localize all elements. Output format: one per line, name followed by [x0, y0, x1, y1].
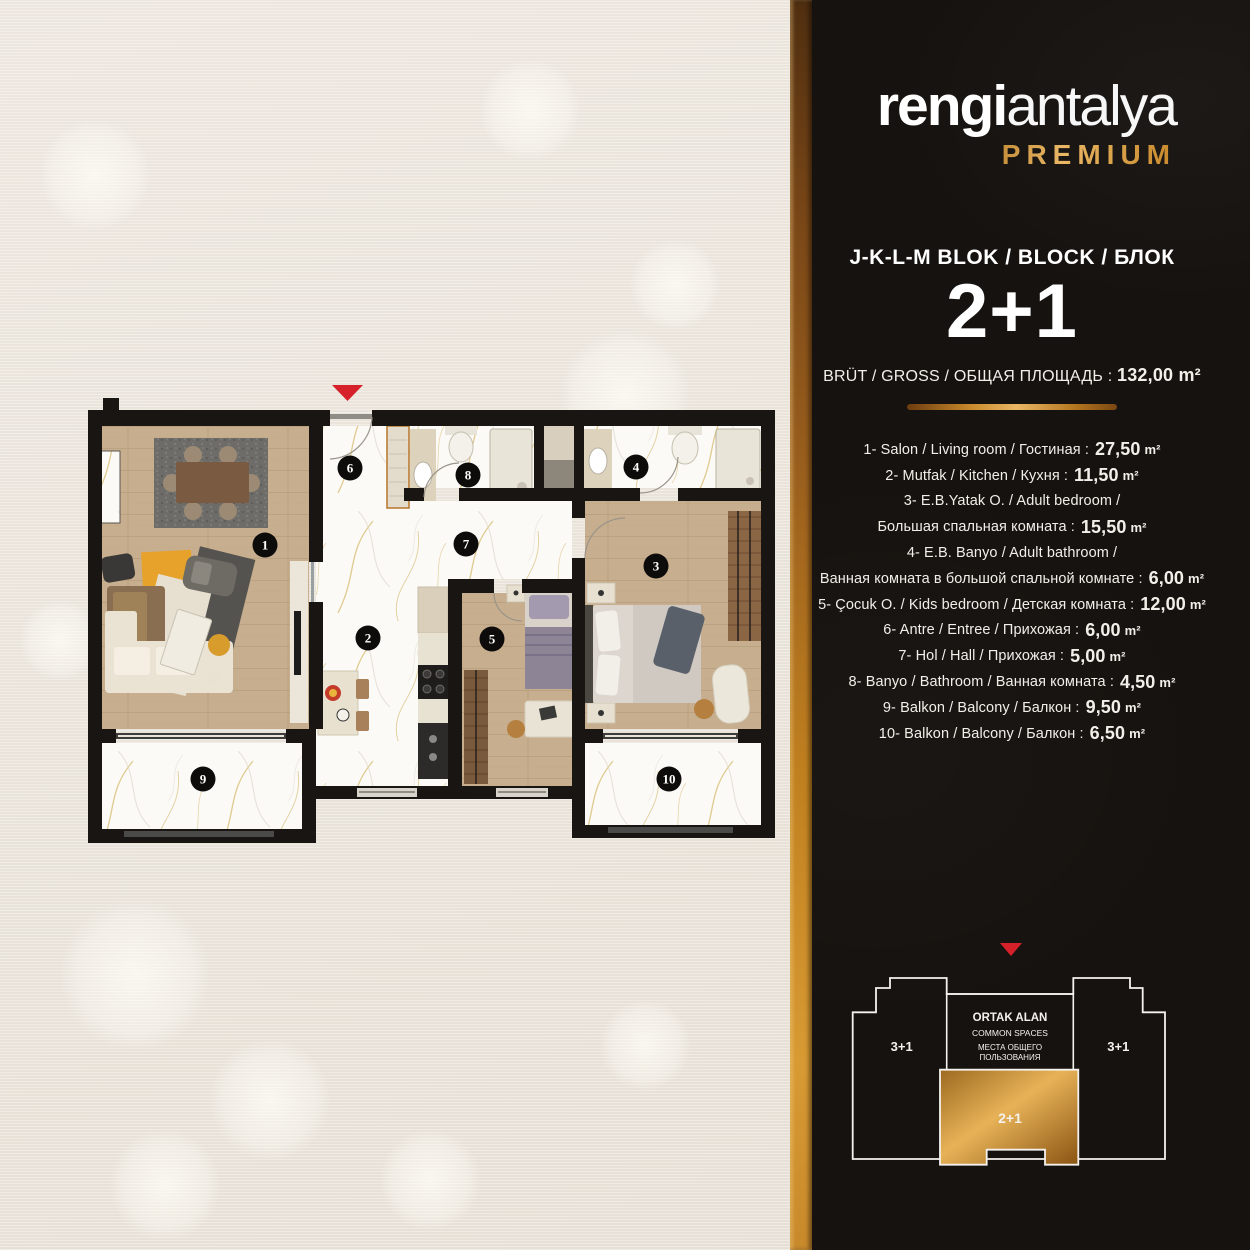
- room-list-item: Большая спальная комната :15,50m²: [812, 514, 1212, 540]
- room-area-unit: m²: [1188, 571, 1204, 586]
- room-badge-number: 6: [347, 461, 354, 476]
- sink: [414, 462, 432, 488]
- counter: [418, 699, 448, 723]
- dining-chair: [184, 502, 202, 520]
- balcony10-rail: [608, 827, 733, 833]
- wall-bath8-1: [404, 488, 424, 501]
- room-list-item: 6- Antre / Entree / Прихожая :6,00m²: [812, 618, 1212, 644]
- wall-living-bottom-1: [88, 729, 116, 743]
- wardrobe: [728, 511, 761, 641]
- room-list-item: 3- E.B.Yatak O. / Adult bedroom /: [812, 489, 1212, 515]
- common-area-label-en: COMMON SPACES: [972, 1028, 1048, 1038]
- wall-bath8-2: [459, 488, 640, 501]
- brand-wordmark: rengiantalya: [877, 78, 1176, 135]
- room-area-unit: m²: [1129, 726, 1145, 741]
- wall-bed3-bottom-1: [585, 729, 603, 743]
- small-pouf: [208, 671, 222, 685]
- room-badge-number: 1: [262, 538, 269, 553]
- block-position-diagram: 3+1 3+1 ORTAK ALAN COMMON SPACES МЕСТА О…: [850, 938, 1170, 1173]
- room-label: 6- Antre / Entree / Прихожая :: [883, 622, 1079, 638]
- side-table: [100, 552, 136, 583]
- room-label: 3- E.B.Yatak O. / Adult bedroom /: [904, 493, 1121, 509]
- pillow: [595, 654, 620, 696]
- room-badge-number: 7: [463, 537, 470, 552]
- room-area-unit: m²: [1123, 468, 1139, 483]
- room-label: 8- Banyo / Bathroom / Ванная комната :: [849, 674, 1114, 690]
- room-label: 10- Balkon / Balcony / Балкон :: [879, 726, 1084, 742]
- room-label: Большая спальная комната :: [877, 519, 1074, 535]
- cabinet-upper: [418, 587, 448, 633]
- room-area-value: 4,50: [1120, 672, 1155, 693]
- room-label: 2- Mutfak / Kitchen / Кухня :: [885, 468, 1068, 484]
- wall-top-left: [88, 410, 330, 426]
- room-list-item: 4- E.B. Banyo / Adult bathroom /: [812, 540, 1212, 566]
- wall-living-entrance-1: [309, 426, 323, 562]
- brand-name-bold: rengi: [877, 74, 1006, 138]
- chair: [507, 720, 525, 738]
- kitchen-table: [318, 671, 358, 735]
- room-list-item: Ванная комната в большой спальной комнат…: [812, 566, 1212, 592]
- room-label: 7- Hol / Hall / Прихожая :: [898, 648, 1064, 664]
- wall-bed3-bottom-2: [738, 729, 761, 743]
- burner: [436, 670, 444, 678]
- room-area-unit: m²: [1125, 623, 1141, 638]
- kids-window-glass: [498, 791, 546, 793]
- gold-divider-strip: [790, 0, 812, 1250]
- gold-divider-bar: [907, 404, 1117, 410]
- bokeh-light: [110, 1130, 220, 1240]
- shaft-floor: [544, 460, 574, 488]
- brand-name-light: antalya: [1006, 74, 1176, 138]
- wall-balcony10-left: [572, 735, 585, 838]
- room-list: 1- Salon / Living room / Гостиная :27,50…: [812, 437, 1212, 747]
- brand-logo: rengiantalya PREMIUM: [877, 78, 1176, 169]
- wall-chimney: [103, 398, 119, 412]
- floor-plan: 12345678910: [88, 383, 778, 863]
- chair: [356, 679, 369, 699]
- counter: [418, 633, 448, 665]
- dining-chair: [219, 446, 237, 464]
- room-area-value: 27,50: [1095, 439, 1141, 460]
- wall-bath4: [678, 488, 761, 501]
- bokeh-light: [630, 240, 720, 330]
- room-label: 1- Salon / Living room / Гостиная :: [863, 442, 1089, 458]
- wall-kitchen-kids: [448, 579, 462, 799]
- stove: [418, 665, 448, 699]
- room-list-item: 1- Salon / Living room / Гостиная :27,50…: [812, 437, 1212, 463]
- wall-hall-bed3-1: [572, 488, 585, 518]
- blanket: [525, 627, 573, 689]
- wall-left: [88, 410, 102, 843]
- wall-closet-bath4: [574, 426, 584, 488]
- chair: [356, 711, 369, 731]
- cabinet-lower: [418, 723, 448, 779]
- room-label: Ванная комната в большой спальной комнат…: [820, 571, 1143, 587]
- highlighted-unit-label: 2+1: [998, 1110, 1022, 1126]
- pillow: [595, 610, 621, 652]
- toilet: [672, 432, 698, 464]
- gross-value: 132,00: [1117, 365, 1173, 385]
- room-label: 9- Balkon / Balcony / Балкон :: [883, 700, 1080, 716]
- wicker-stool: [694, 699, 714, 719]
- burner: [436, 685, 444, 693]
- tv: [294, 611, 301, 675]
- gross-unit: m²: [1178, 365, 1200, 385]
- room-area-unit: m²: [1125, 700, 1141, 715]
- room-badge-number: 10: [663, 772, 676, 787]
- unit-type: 2+1: [812, 268, 1212, 355]
- bokeh-light: [480, 60, 580, 160]
- room-area-value: 6,50: [1090, 723, 1125, 744]
- room-label: 5- Çocuk O. / Kids bedroom / Детская ком…: [818, 597, 1134, 613]
- right-wing-label: 3+1: [1107, 1039, 1129, 1054]
- common-area-label-tr: ORTAK ALAN: [973, 1012, 1048, 1024]
- plate: [337, 709, 349, 721]
- sideboard: [100, 451, 120, 523]
- burner: [423, 685, 431, 693]
- slider-glass: [118, 735, 284, 737]
- diagram-marker-triangle: [1000, 943, 1022, 956]
- lamp: [598, 590, 604, 596]
- left-wing-label: 3+1: [891, 1039, 913, 1054]
- pouf: [208, 634, 230, 656]
- room-area-value: 5,00: [1070, 646, 1105, 667]
- dining-chair: [219, 502, 237, 520]
- wall-kids-top-1: [462, 579, 494, 593]
- desk: [711, 663, 751, 724]
- bokeh-light: [40, 120, 150, 230]
- oven-knob: [429, 753, 437, 761]
- wall-right: [761, 410, 775, 838]
- dining-chair: [184, 446, 202, 464]
- room-list-item: 10- Balkon / Balcony / Балкон :6,50m²: [812, 721, 1212, 747]
- room-area-value: 9,50: [1086, 697, 1121, 718]
- room-area-value: 11,50: [1074, 465, 1119, 486]
- bokeh-light: [380, 1130, 480, 1230]
- block-title: J-K-L-M BLOK / BLOCK / БЛОК: [812, 246, 1212, 270]
- room-area-value: 6,00: [1149, 568, 1184, 589]
- toilet: [449, 432, 473, 462]
- common-area-label-ru2: ПОЛЬЗОВАНИЯ: [980, 1053, 1041, 1062]
- room-badge-number: 9: [200, 772, 207, 787]
- room-area-unit: m²: [1159, 675, 1175, 690]
- bokeh-light: [600, 1000, 690, 1090]
- room-list-item: 9- Balkon / Balcony / Балкон :9,50m²: [812, 695, 1212, 721]
- entrance-marker-triangle: [332, 385, 363, 401]
- room-list-item: 7- Hol / Hall / Прихожая :5,00m²: [812, 643, 1212, 669]
- shower-drain: [746, 477, 754, 485]
- bokeh-light: [210, 1040, 330, 1160]
- room-badge-number: 8: [465, 468, 472, 483]
- room-area-value: 15,50: [1081, 517, 1127, 538]
- pillow: [529, 595, 569, 619]
- desk: [525, 701, 575, 737]
- room-list-item: 5- Çocuk O. / Kids bedroom / Детская ком…: [812, 592, 1212, 618]
- wall-top-right: [372, 410, 775, 426]
- gross-label: BRÜT / GROSS / ОБЩАЯ ПЛОЩАДЬ :: [823, 368, 1112, 385]
- kitchen-window-glass: [359, 791, 415, 793]
- oven-knob: [429, 735, 437, 743]
- bokeh-light: [60, 900, 210, 1050]
- room-badge-number: 2: [365, 631, 372, 646]
- food: [329, 689, 337, 697]
- closet-floor: [544, 426, 574, 460]
- bed-headboard: [585, 605, 593, 703]
- slider-glass: [605, 735, 736, 737]
- brand-premium-label: PREMIUM: [877, 141, 1176, 169]
- wall-kids-top-2: [522, 579, 585, 593]
- sink: [589, 448, 607, 474]
- lamp: [598, 710, 604, 716]
- wall-living-entrance-2: [309, 602, 323, 729]
- balcony9-rail: [124, 831, 274, 837]
- burner: [423, 670, 431, 678]
- wall-bath8-closet: [534, 426, 544, 488]
- room-badge-number: 3: [653, 559, 660, 574]
- room-area-unit: m²: [1110, 649, 1126, 664]
- gross-area-line: BRÜT / GROSS / ОБЩАЯ ПЛОЩАДЬ : 132,00 m²: [812, 365, 1212, 386]
- room-list-item: 2- Mutfak / Kitchen / Кухня :11,50m²: [812, 463, 1212, 489]
- common-area-label-ru1: МЕСТА ОБЩЕГО: [978, 1043, 1042, 1052]
- info-panel: rengiantalya PREMIUM J-K-L-M BLOK / BLOC…: [812, 0, 1250, 1250]
- living-glass-partition: [311, 562, 314, 602]
- entrance-door-head: [330, 414, 372, 419]
- room-area-unit: m²: [1190, 597, 1206, 612]
- room-area-unit: m²: [1145, 442, 1161, 457]
- room-area-unit: m²: [1130, 520, 1146, 535]
- lamp: [514, 591, 519, 596]
- room-area-value: 6,00: [1085, 620, 1120, 641]
- room-label: 4- E.B. Banyo / Adult bathroom /: [907, 545, 1117, 561]
- sofa-cushion: [114, 647, 150, 675]
- dining-table: [176, 462, 249, 503]
- shower-tray: [716, 429, 760, 493]
- room-badge-number: 4: [633, 460, 640, 475]
- room-area-value: 12,00: [1140, 594, 1186, 615]
- room-list-item: 8- Banyo / Bathroom / Ванная комната :4,…: [812, 669, 1212, 695]
- room-badge-number: 5: [489, 632, 496, 647]
